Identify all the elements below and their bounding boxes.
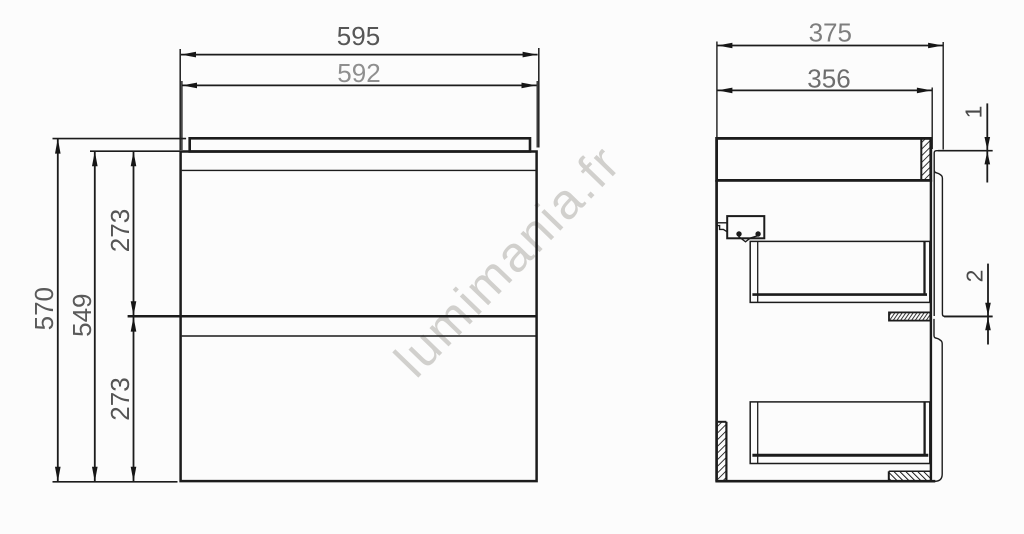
svg-text:592: 592 [337,58,380,88]
svg-text:375: 375 [809,18,852,48]
svg-text:570: 570 [29,287,59,330]
svg-text:595: 595 [337,21,380,51]
svg-text:356: 356 [807,63,850,93]
svg-text:273: 273 [105,209,135,252]
svg-text:273: 273 [105,377,135,420]
svg-text:549: 549 [67,294,97,337]
svg-text:2: 2 [961,270,987,283]
svg-text:1: 1 [960,106,986,119]
